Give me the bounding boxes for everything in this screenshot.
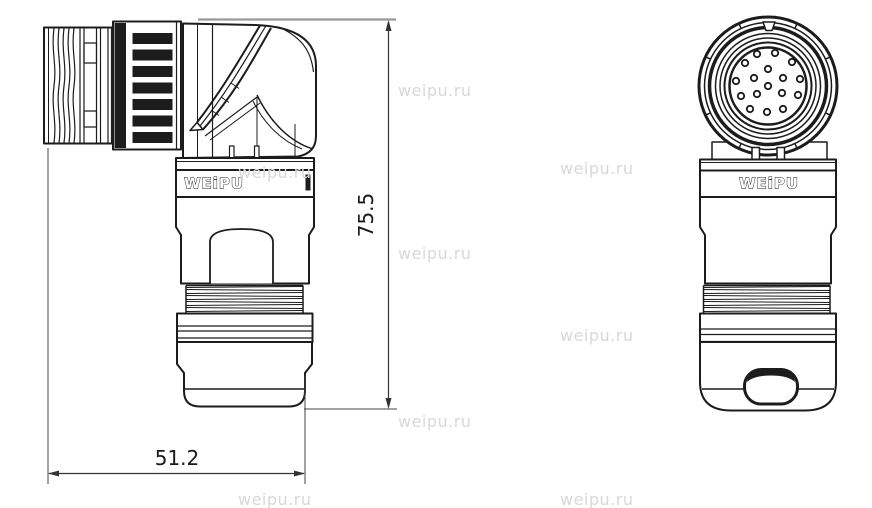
elbow-body	[183, 24, 316, 159]
pin	[779, 90, 785, 96]
neck-tab	[230, 146, 235, 158]
coupling-nut	[113, 22, 181, 150]
nut-rib	[133, 33, 173, 44]
threaded-interface	[44, 28, 113, 144]
nut-rib	[133, 66, 173, 77]
pin	[780, 106, 786, 112]
gland-thread-line	[186, 287, 303, 312]
brand-logo: WEiPU	[184, 175, 244, 193]
pin	[789, 59, 795, 65]
watermark: weipu.ru	[560, 328, 633, 344]
watermark: weipu.ru	[560, 161, 633, 177]
cap-outline	[177, 342, 312, 407]
main-body	[700, 197, 836, 284]
body-outline	[700, 197, 836, 284]
width-dimension-label: 51.2	[155, 446, 200, 470]
nut-rib	[133, 116, 173, 127]
pin	[733, 78, 739, 84]
pin	[754, 91, 760, 97]
watermark: weipu.ru	[398, 246, 471, 262]
height-dimension-label: 75.5	[354, 193, 378, 238]
latch-button	[745, 370, 798, 405]
logo-band: WEiPU	[700, 171, 836, 198]
pin	[780, 75, 786, 81]
gland-nut-band	[700, 314, 836, 343]
arrowhead-left	[48, 471, 59, 477]
gland-nut-band	[177, 314, 313, 343]
nut-rib	[133, 132, 173, 143]
pin	[754, 51, 760, 57]
pin	[751, 75, 757, 81]
bottom-cap	[177, 342, 312, 407]
gland-thread-line	[704, 287, 831, 312]
keyway-notch	[763, 22, 775, 31]
main-body	[176, 197, 314, 284]
pin	[797, 76, 803, 82]
neck-tab	[255, 146, 260, 158]
brand-logo: WEiPU	[739, 175, 799, 193]
pin	[738, 93, 744, 99]
shoulder-band-outline	[700, 160, 836, 171]
watermark: weipu.ru	[238, 492, 311, 508]
cable-gland-threads	[186, 286, 303, 314]
side-view: WEiPU	[44, 22, 316, 407]
pin	[765, 83, 771, 89]
arrowhead-down	[386, 398, 392, 409]
pin	[747, 106, 753, 112]
gland-nut-outline	[700, 314, 836, 343]
pin	[764, 109, 770, 115]
nut-rib	[133, 50, 173, 61]
nut-rib	[133, 83, 173, 94]
nut-edge-shade	[115, 23, 127, 148]
arrowhead-up	[386, 20, 392, 31]
shoulder-band	[700, 160, 836, 171]
cable-gland-threads	[704, 286, 831, 314]
watermark: weipu.ru	[238, 165, 311, 181]
pin	[765, 66, 771, 72]
connector-face	[699, 17, 837, 155]
arrowhead-right	[294, 471, 305, 477]
front-view: WEiPU	[699, 17, 837, 411]
pin	[795, 92, 801, 98]
watermark: weipu.ru	[560, 492, 633, 508]
bottom-cap	[700, 342, 836, 411]
pin	[772, 50, 778, 56]
watermark: weipu.ru	[398, 414, 471, 430]
body-dome-bump	[210, 229, 273, 284]
pin	[742, 60, 748, 66]
drawing-canvas: WEiPU	[0, 0, 872, 508]
nut-rib	[133, 99, 173, 110]
watermark: weipu.ru	[398, 83, 471, 99]
